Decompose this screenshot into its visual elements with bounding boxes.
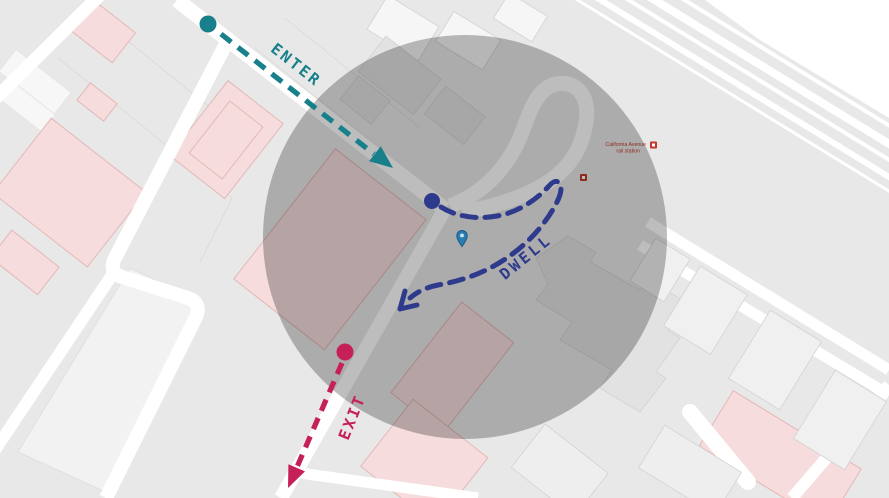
- dwell-point-dot-icon: [424, 193, 440, 209]
- geofence-map-figure: California Avenue rail station ENTER DWE…: [0, 0, 889, 498]
- enter-start-dot-icon: [200, 16, 217, 33]
- map-canvas[interactable]: California Avenue rail station ENTER DWE…: [0, 0, 889, 498]
- transit-station-icon-glyph: [652, 144, 655, 147]
- location-pin-dot: [460, 234, 464, 238]
- exit-start-dot-icon: [337, 344, 354, 361]
